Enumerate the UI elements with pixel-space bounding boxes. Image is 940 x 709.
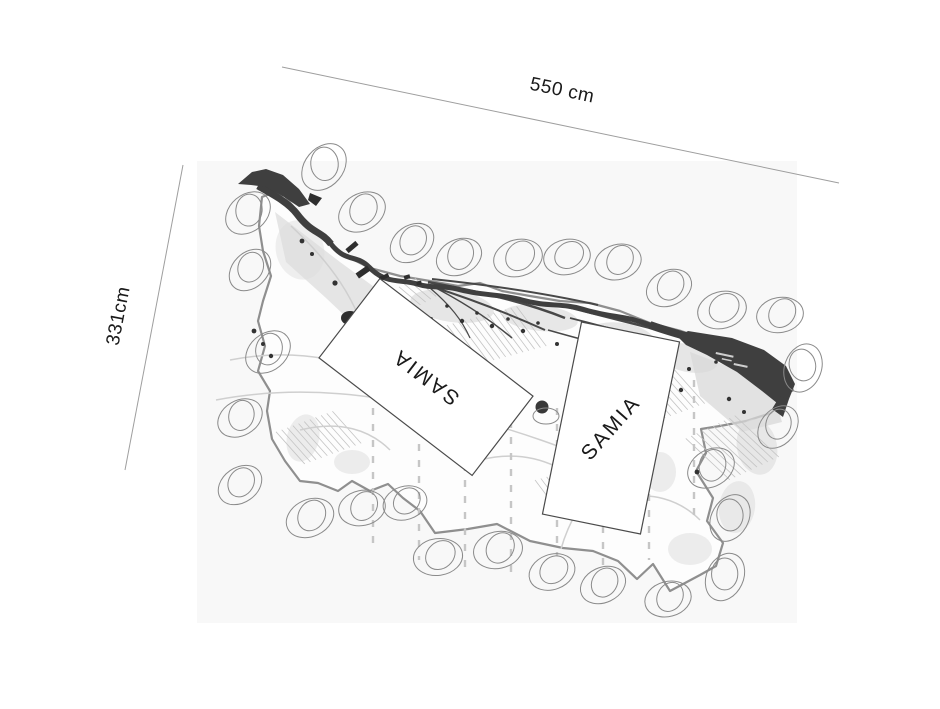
left-dimension-label: 331cm <box>103 285 135 347</box>
top-dimension-label: 550 cm <box>528 74 596 108</box>
layout-drawing: 550 cm 331cm SAMIA SAMIA <box>0 0 940 709</box>
left-dimension: 331cm <box>103 165 183 470</box>
left-dimension-line <box>125 165 183 470</box>
